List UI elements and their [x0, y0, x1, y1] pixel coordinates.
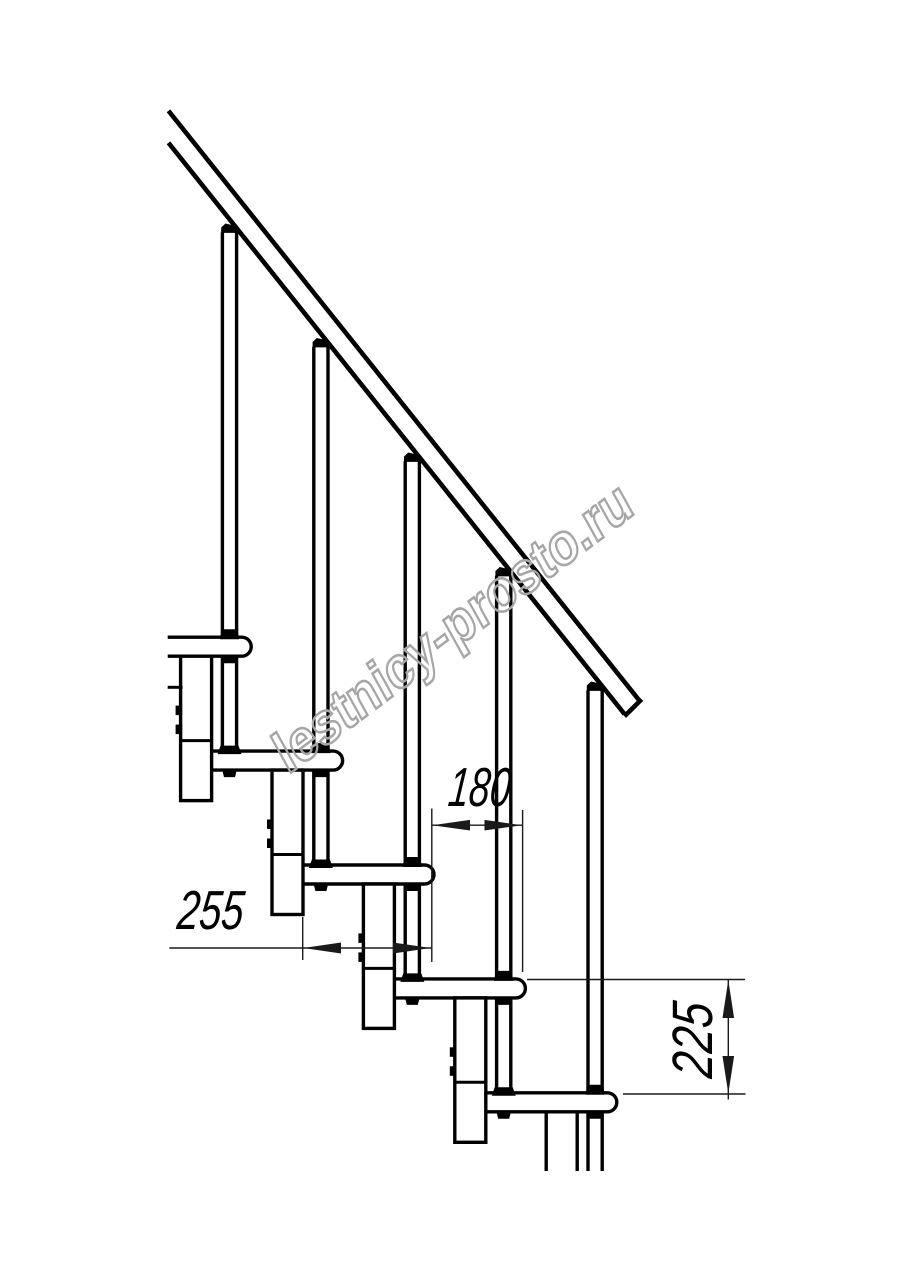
svg-text:180: 180	[446, 756, 515, 818]
svg-text:225: 225	[661, 998, 725, 1081]
svg-text:255: 255	[174, 879, 247, 941]
